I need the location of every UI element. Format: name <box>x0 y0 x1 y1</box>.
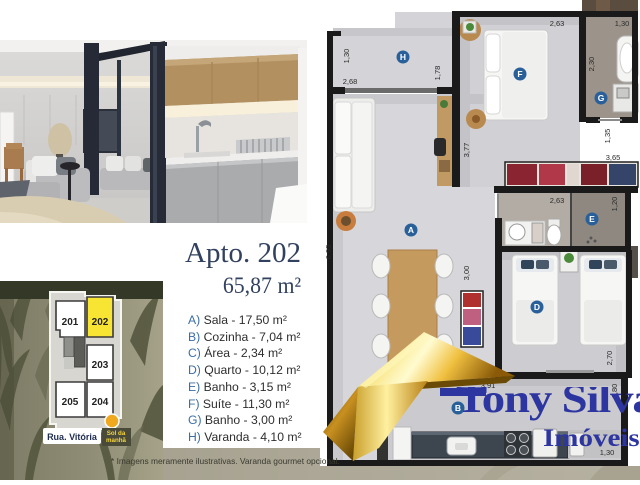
svg-text:E: E <box>589 214 595 224</box>
svg-text:3,77: 3,77 <box>462 143 471 158</box>
svg-text:1,20: 1,20 <box>610 197 619 212</box>
svg-text:2,70: 2,70 <box>605 351 614 366</box>
svg-text:205: 205 <box>62 397 79 408</box>
svg-text:H: H <box>400 52 406 62</box>
svg-text:D: D <box>534 302 540 312</box>
svg-text:G: G <box>598 93 605 103</box>
svg-text:F: F <box>517 69 522 79</box>
svg-text:2,63: 2,63 <box>550 19 565 28</box>
svg-text:203: 203 <box>92 360 109 371</box>
svg-text:Rua. Vitória: Rua. Vitória <box>47 432 98 442</box>
svg-text:6,93: 6,93 <box>324 245 333 260</box>
svg-text:manhã: manhã <box>106 437 127 444</box>
svg-text:2,30: 2,30 <box>587 57 596 72</box>
svg-text:201: 201 <box>62 317 79 328</box>
svg-text:1,78: 1,78 <box>433 66 442 81</box>
svg-text:3,00: 3,00 <box>462 266 471 281</box>
svg-text:1,35: 1,35 <box>603 129 612 144</box>
svg-text:1,30: 1,30 <box>615 19 630 28</box>
svg-text:Sol da: Sol da <box>107 430 126 437</box>
svg-text:202: 202 <box>92 317 109 328</box>
svg-text:204: 204 <box>92 397 109 408</box>
svg-text:3,65: 3,65 <box>606 153 621 162</box>
svg-text:A: A <box>408 225 414 235</box>
svg-text:2,63: 2,63 <box>550 196 565 205</box>
svg-text:2,68: 2,68 <box>343 77 358 86</box>
svg-text:1,30: 1,30 <box>342 49 351 64</box>
